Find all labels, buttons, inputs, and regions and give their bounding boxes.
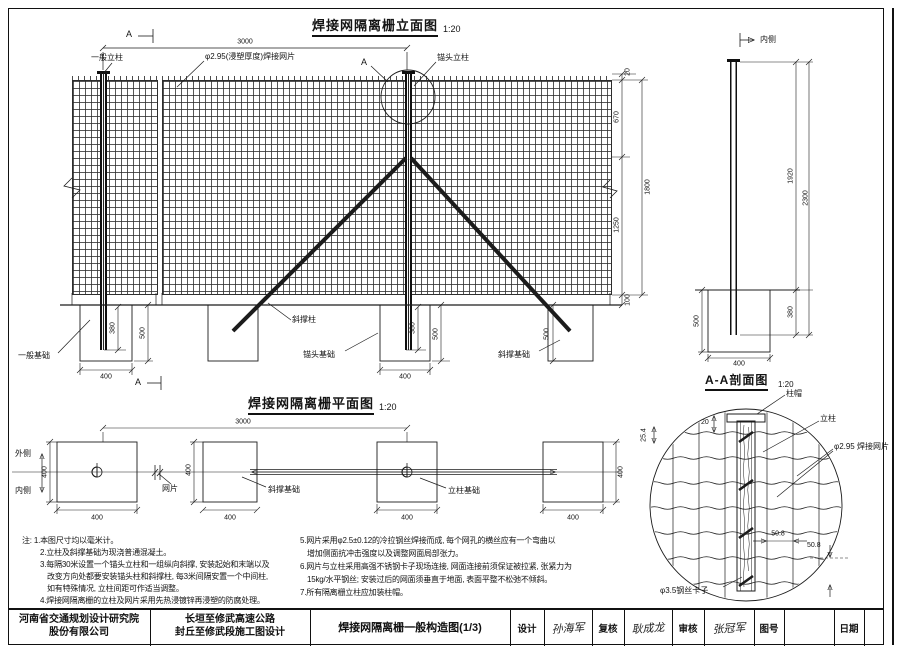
tb-divider <box>834 610 835 646</box>
dim-1250: 1250 <box>614 217 621 233</box>
check-label: 复核 <box>598 621 617 635</box>
title-block: 河南省交通规划设计研究院 股份有限公司 长垣至修武高速公路 封丘至修武段施工图设… <box>8 608 884 646</box>
note-left-1: 注: 1.本图尺寸均以毫米计。 <box>22 535 118 546</box>
note-right-6: 6.网片与立柱采用高强不锈钢卡子现场连接, 网面连接前须保证被拉紧, 张紧力为 <box>300 561 572 572</box>
plan-dim-s2-left: 400 <box>186 464 193 476</box>
drawing-title: 焊接网隔离栅一般构造图(1/3) <box>310 622 510 636</box>
plan-post-foundation-label: 立柱基础 <box>448 485 480 496</box>
mesh-panel-right <box>162 80 612 295</box>
note-left-2: 2.立柱及斜撑基础为现浇普通混凝土。 <box>40 547 171 558</box>
tb-divider <box>672 610 673 646</box>
mesh-piece-label: 网片 <box>162 483 178 494</box>
inner-side-label: 内侧 <box>760 34 776 45</box>
sheet-outer-edge <box>892 8 894 645</box>
check-signature: 耿成龙 <box>631 619 665 637</box>
anchor-post-label: 锚头立柱 <box>437 52 469 63</box>
dim-1800: 1800 <box>645 179 652 195</box>
dim-span: 3000 <box>237 39 253 46</box>
dim-width-left: 400 <box>100 374 112 381</box>
dim-width-anchor: 400 <box>399 374 411 381</box>
section-marker-a-top-label: A <box>126 29 132 39</box>
dim-100: 100 <box>625 294 632 306</box>
note-left-3: 3.每隔30米设置一个锚头立柱和一组纵向斜撑, 安装起始和末端以及 <box>40 559 269 570</box>
tb-divider <box>544 610 545 646</box>
dim-top-20: 20 <box>625 68 632 76</box>
dim-1920: 1920 <box>788 168 795 184</box>
dim-postview-depth: 500 <box>694 315 701 327</box>
note-left-3c: 如有特殊情况, 立柱间距可作适当调整。 <box>47 583 184 594</box>
elevation-scale: 1:20 <box>443 24 461 34</box>
note-right-5b: 增加侧面抗冲击强度以及调整网面局部张力。 <box>307 548 463 559</box>
dim-2300: 2300 <box>803 190 810 206</box>
detail-marker-a-label: A <box>361 57 367 67</box>
dim-postview-width: 400 <box>733 361 745 368</box>
dim-postview-embed: 380 <box>788 306 795 318</box>
company-line-1: 河南省交通规划设计研究院 <box>8 614 150 627</box>
side-view-post <box>730 62 737 335</box>
tb-divider <box>624 610 625 646</box>
dim-depth-brace: 500 <box>544 328 551 340</box>
dim-depth-left: 500 <box>140 327 147 339</box>
dim-depth-anchor: 500 <box>433 328 440 340</box>
note-left-4: 4.焊接网隔离栅的立柱及网片采用先热浸镀锌再浸塑的防腐处理。 <box>40 595 265 606</box>
tb-divider <box>592 610 593 646</box>
project-line-1: 长垣至修武高速公路 <box>150 614 310 627</box>
outer-side-label: 外侧 <box>15 448 31 459</box>
review-signature: 张冠军 <box>712 619 746 637</box>
date-label: 日期 <box>839 621 858 635</box>
anchor-post <box>405 74 412 350</box>
clip-label: φ3.5钢丝卡子 <box>660 585 708 596</box>
company-name: 河南省交通规划设计研究院 股份有限公司 <box>8 614 150 639</box>
plan-dim-s4-bottom: 400 <box>567 515 579 522</box>
post-label-section: 立柱 <box>820 413 836 424</box>
brace-label: 斜撑柱 <box>292 314 316 325</box>
project-line-2: 封丘至修武段施工图设计 <box>150 627 310 640</box>
plan-brace-foundation-label: 斜撑基础 <box>268 484 300 495</box>
drawing-sheet: 焊接网隔离栅立面图 1:20 3000 A 一般立柱 φ2.95(浸塑厚度)焊接… <box>0 0 900 651</box>
note-right-5: 5.网片采用φ2.5±0.12的冷拉钢丝焊接而成, 每个网孔的横丝应有一个弯曲以 <box>300 535 555 546</box>
figure-number-label: 图号 <box>759 621 778 635</box>
dim-embed-anchor: 380 <box>410 322 417 334</box>
tb-divider <box>510 610 511 646</box>
review-label: 审核 <box>678 621 697 635</box>
tb-divider <box>864 610 865 646</box>
note-right-7: 7.所有隔离栅立柱应加装柱帽。 <box>300 587 408 598</box>
note-left-3b: 改变方向处都要安装锚头柱和斜撑柱, 每3米间隔安置一个中间柱, <box>47 571 268 582</box>
plan-dim-s4-right: 400 <box>618 466 625 478</box>
design-signature: 孙海军 <box>551 619 585 637</box>
note-right-6b: 15kg/水平钢丝; 安装过后的网面须垂直于地面, 表面平整不松弛不倾斜。 <box>307 574 552 585</box>
tb-divider <box>754 610 755 646</box>
dim-embed-left: 380 <box>110 322 117 334</box>
plan-dim-s2-bottom: 400 <box>224 515 236 522</box>
design-label: 设计 <box>517 621 536 635</box>
project-name: 长垣至修武高速公路 封丘至修武段施工图设计 <box>150 614 310 639</box>
plan-dim-s1-bottom: 400 <box>91 515 103 522</box>
elevation-title: 焊接网隔离栅立面图 <box>312 15 438 37</box>
mesh-label: φ2.95(浸塑厚度)焊接网片 <box>205 51 295 62</box>
plan-title: 焊接网隔离栅平面图 <box>248 393 374 415</box>
section-title: A-A剖面图 <box>705 371 768 391</box>
brace-foundation-label: 斜撑基础 <box>498 349 530 360</box>
plan-dim-s1-left: 400 <box>42 466 49 478</box>
company-line-2: 股份有限公司 <box>8 627 150 640</box>
general-foundation-label: 一般基础 <box>18 350 50 361</box>
plan-dim-span: 3000 <box>235 419 251 426</box>
tb-divider <box>704 610 705 646</box>
cap-label: 柱帽 <box>786 388 802 399</box>
dim-cap-gap: 20 <box>701 419 709 426</box>
anchor-foundation-label: 锚头基础 <box>303 349 335 360</box>
section-marker-a-bottom-label: A <box>135 377 141 387</box>
plan-scale: 1:20 <box>379 402 397 412</box>
mesh-panel-left <box>72 80 158 295</box>
dim-25-4: 25.4 <box>641 428 648 442</box>
plan-dim-s3-bottom: 400 <box>401 515 413 522</box>
general-post <box>100 74 107 350</box>
general-post-label: 一般立柱 <box>91 52 123 63</box>
dim-670: 670 <box>614 111 621 123</box>
mesh-label-section: φ2.95 焊接网片 <box>834 441 889 452</box>
tb-divider <box>784 610 785 646</box>
dim-50-8-v: 50.8 <box>807 542 821 549</box>
dim-50-8-h: 50.8 <box>771 531 785 538</box>
inner-side-label-plan: 内侧 <box>15 485 31 496</box>
